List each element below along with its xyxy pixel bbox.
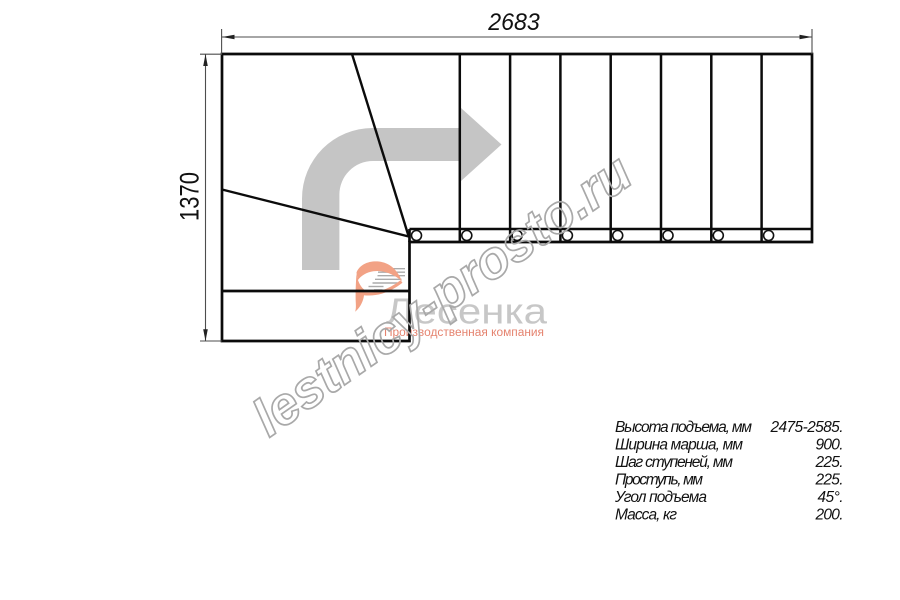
- svg-text:2475-2585.: 2475-2585.: [770, 419, 844, 436]
- svg-text:lestnicy-prosto.ru: lestnicy-prosto.ru: [242, 143, 643, 448]
- svg-text:Ширина марша, мм: Ширина марша, мм: [615, 437, 743, 454]
- svg-text:Шаг ступеней, мм: Шаг ступеней, мм: [615, 454, 733, 471]
- svg-text:2683: 2683: [487, 9, 540, 36]
- svg-text:Масса, кг: Масса, кг: [615, 507, 677, 524]
- svg-text:1370: 1370: [175, 172, 205, 221]
- svg-text:225.: 225.: [815, 472, 844, 489]
- svg-text:200.: 200.: [815, 507, 844, 524]
- svg-text:45°.: 45°.: [818, 489, 844, 506]
- svg-text:225.: 225.: [815, 454, 844, 471]
- svg-text:Проступь, мм: Проступь, мм: [615, 472, 703, 489]
- svg-text:Угол подъема: Угол подъема: [614, 489, 707, 506]
- svg-text:900.: 900.: [816, 437, 844, 454]
- svg-text:Высота подъема, мм: Высота подъема, мм: [615, 419, 752, 436]
